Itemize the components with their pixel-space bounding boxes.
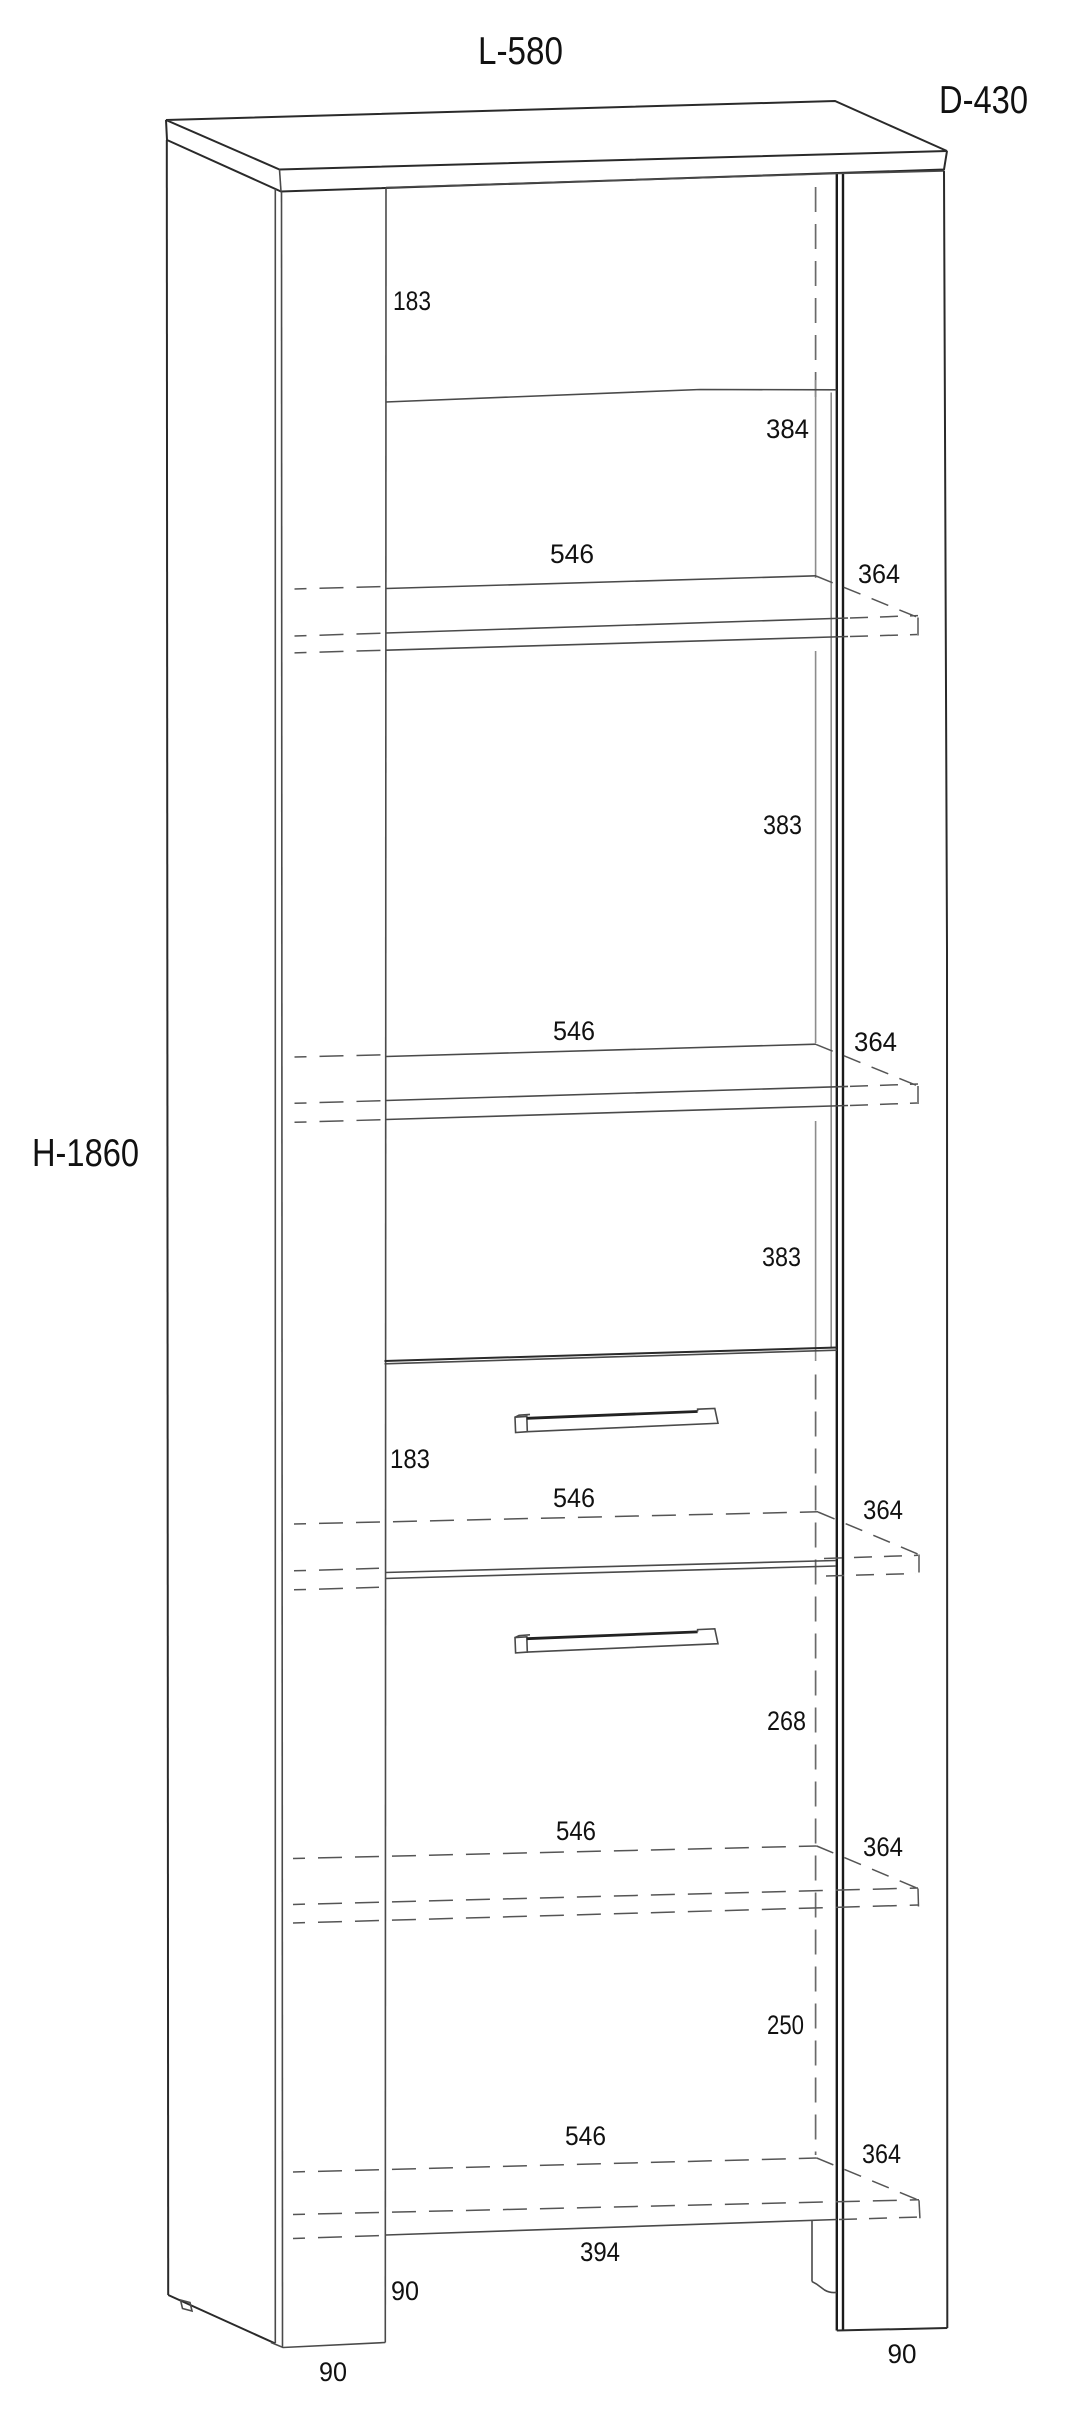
svg-text:D-430: D-430 — [939, 79, 1028, 122]
svg-text:L-580: L-580 — [478, 30, 563, 73]
svg-text:383: 383 — [763, 810, 802, 840]
svg-text:183: 183 — [393, 286, 431, 316]
svg-text:546: 546 — [553, 1483, 595, 1513]
svg-text:183: 183 — [390, 1444, 430, 1474]
svg-text:H-1860: H-1860 — [32, 1132, 139, 1175]
svg-text:364: 364 — [863, 1832, 903, 1862]
svg-text:364: 364 — [862, 2139, 901, 2169]
svg-text:90: 90 — [319, 2357, 347, 2387]
svg-text:546: 546 — [553, 1016, 595, 1046]
svg-text:383: 383 — [762, 1242, 801, 1272]
svg-text:250: 250 — [767, 2010, 804, 2040]
svg-text:546: 546 — [565, 2121, 606, 2151]
svg-text:364: 364 — [863, 1495, 903, 1525]
svg-text:394: 394 — [580, 2237, 620, 2267]
svg-text:364: 364 — [858, 559, 900, 589]
svg-text:90: 90 — [391, 2276, 419, 2306]
svg-text:546: 546 — [550, 539, 594, 569]
svg-text:546: 546 — [556, 1816, 596, 1846]
svg-text:268: 268 — [767, 1706, 806, 1736]
svg-text:384: 384 — [766, 414, 809, 444]
svg-text:364: 364 — [854, 1027, 897, 1057]
svg-text:90: 90 — [888, 2339, 917, 2369]
